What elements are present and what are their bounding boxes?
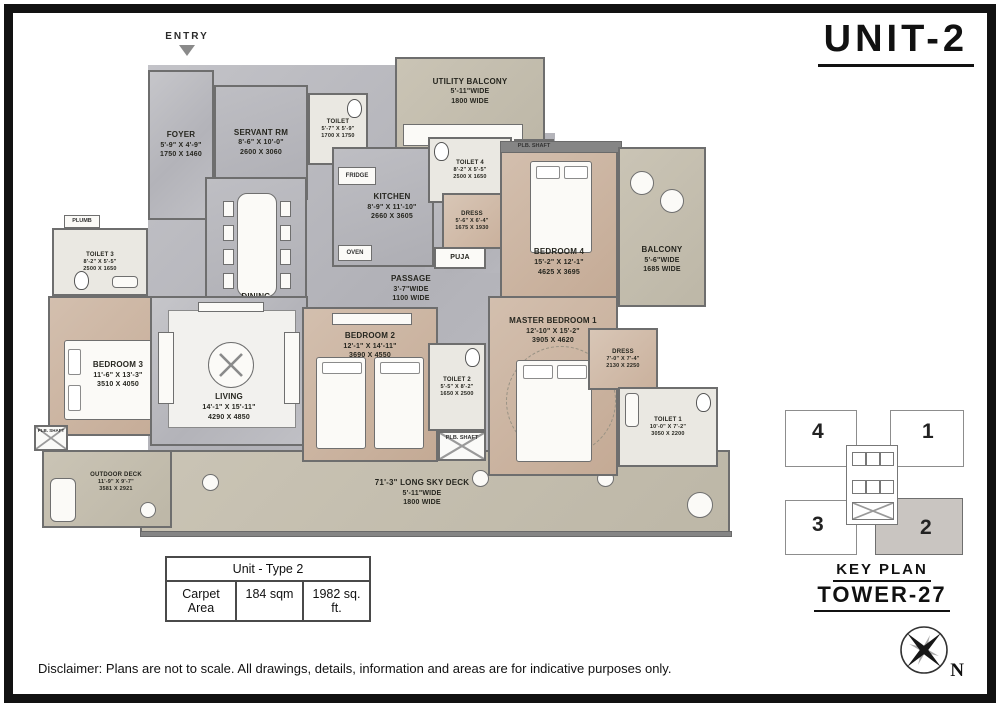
room-dims-mm: 3581 X 2921: [90, 486, 142, 493]
toilet-icon: [696, 393, 711, 412]
room-dims-mm: 3690 X 4550: [304, 351, 436, 360]
room-name: TOILET 1: [654, 417, 682, 423]
planter-icon: [202, 474, 219, 491]
room-name: LIVING: [215, 392, 243, 401]
dining-chair: [223, 273, 234, 289]
toilet-icon: [434, 142, 449, 161]
room-name: BEDROOM 3: [93, 360, 143, 369]
room-dims-ft: 15'-2" X 12'-1": [502, 258, 616, 267]
pillow: [557, 365, 587, 379]
keyplan-core: [846, 445, 898, 525]
dining-chair: [280, 201, 291, 217]
foyer-label: FOYER 5'-9" X 4'-9" 1750 X 1460: [160, 130, 202, 160]
room-name: 71'-3" LONG SKY DECK: [375, 478, 469, 487]
room-bedroom2: BEDROOM 2 12'-1" X 14'-11" 3690 X 4550: [302, 307, 438, 462]
room-dims-ft: 12'-10" X 15'-2": [490, 327, 616, 336]
toilet-icon: [465, 348, 480, 367]
bed-graphic: [530, 161, 592, 253]
puja-label: PUJA: [450, 253, 469, 262]
room-name: KITCHEN: [374, 192, 411, 201]
planter-icon: [472, 470, 489, 487]
room-puja: PUJA: [434, 247, 486, 269]
room-dims-mm: 3510 X 4050: [50, 380, 186, 389]
keyplan-core-cell: [866, 452, 880, 466]
lounge-chair: [50, 478, 76, 522]
entry-text: ENTRY: [165, 31, 209, 42]
compass-rose-icon: [896, 622, 952, 678]
room-dims-mm: 1800 WIDE: [322, 498, 522, 507]
carpet-area-sqft: 1982 sq. ft.: [302, 582, 369, 620]
room-name: MASTER BEDROOM 1: [509, 316, 597, 325]
room-name: BEDROOM 4: [534, 247, 584, 256]
living-label: LIVING 14'-1" X 15'-11" 4290 X 4850: [152, 392, 306, 422]
room-dims-ft: 8'-9" X 11'-10": [367, 203, 416, 212]
room-name: BEDROOM 2: [345, 331, 395, 340]
room-name: UTILITY BALCONY: [433, 77, 508, 86]
pillow: [523, 365, 553, 379]
bed-graphic: [516, 360, 592, 462]
dining-table: [237, 193, 277, 297]
room-dims-mm: 1685 WIDE: [620, 265, 704, 274]
keyplan-title: KEY PLAN: [782, 561, 982, 582]
dress4-label: DRESS 5'-6" X 6'-4" 1675 X 1930: [455, 210, 488, 233]
disclaimer-text: Disclaimer: Plans are not to scale. All …: [38, 661, 671, 676]
pillow: [564, 166, 588, 179]
carpet-area-label: Carpet Area: [167, 582, 235, 620]
room-name: SERVANT RM: [234, 128, 288, 137]
toilet3-label: TOILET 3 8'-2" X 5'-5" 2500 X 1650: [83, 251, 116, 274]
room-dims-ft: 3'-7"WIDE: [391, 285, 431, 294]
sky-deck-label: 71'-3" LONG SKY DECK 5'-11"WIDE 1800 WID…: [322, 478, 522, 508]
room-dims-mm: 1750 X 1460: [160, 150, 202, 159]
fridge-label: FRIDGE: [338, 167, 376, 185]
outdoor-deck-label: OUTDOOR DECK 11'-9" X 9'-7" 3581 X 2921: [90, 471, 142, 494]
room-dims-ft: 12'-1" X 14'-11": [304, 342, 436, 351]
room-dims-ft: 5'-7" X 5'-9": [321, 126, 354, 133]
area-table-header: Unit - Type 2: [167, 558, 369, 582]
toilet1-label: TOILET 1 10'-0" X 7'-2" 3050 X 2200: [650, 416, 686, 439]
room-dims-ft: 5'-6" X 6'-4": [455, 218, 488, 225]
room-name: DRESS: [461, 211, 483, 217]
carpet-area-sqm: 184 sqm: [235, 582, 302, 620]
tower-title-text: TOWER-27: [814, 582, 949, 612]
balcony-chair: [660, 189, 684, 213]
keyplan-core-cell: [866, 480, 880, 494]
room-passage: PASSAGE 3'-7"WIDE 1100 WIDE: [330, 269, 492, 309]
balcony-label: BALCONY 5'-6"WIDE 1685 WIDE: [620, 245, 704, 275]
room-balcony: BALCONY 5'-6"WIDE 1685 WIDE: [618, 147, 706, 307]
floor-plan: ENTRY 71'-3" LONG SKY DECK 5'-11"WIDE 18…: [30, 25, 765, 565]
room-toilet3: TOILET 3 8'-2" X 5'-5" 2500 X 1650: [52, 228, 148, 296]
pillow: [322, 362, 362, 374]
basin-icon: [625, 393, 639, 427]
room-dims-mm: 2660 X 3605: [367, 212, 416, 221]
oven-label: OVEN: [338, 245, 372, 261]
basin-icon: [112, 276, 138, 288]
room-name: TOILET: [327, 119, 349, 125]
room-dims-ft: 10'-0" X 7'-2": [650, 424, 686, 431]
room-toilet1: TOILET 1 10'-0" X 7'-2" 3050 X 2200: [618, 387, 718, 467]
keyplan-core-cell: [880, 452, 894, 466]
dining-chair: [223, 249, 234, 265]
room-outdoor-deck: OUTDOOR DECK 11'-9" X 9'-7" 3581 X 2921: [42, 450, 172, 528]
area-table-row: Carpet Area 184 sqm 1982 sq. ft.: [167, 582, 369, 620]
room-dims-mm: 1700 X 1750: [321, 133, 354, 140]
room-name: TOILET 2: [443, 377, 471, 383]
room-name: PASSAGE: [391, 274, 431, 283]
deck-table: [140, 502, 156, 518]
room-kitchen: KITCHEN 8'-9" X 11'-10" 2660 X 3605 FRID…: [332, 147, 434, 267]
room-dims-mm: 4625 X 3695: [502, 268, 616, 277]
plb-shaft-label: PLB. SHAFT: [516, 143, 552, 149]
room-dims-mm: 4290 X 4850: [152, 413, 306, 422]
room-toilet2: TOILET 2 5'-5" X 8'-2" 1650 X 2500: [428, 343, 486, 431]
shaft-cross-icon: [853, 503, 893, 519]
room-dims-mm: 3050 X 2200: [650, 431, 686, 438]
plb-shaft-left: PLB. SHAFT: [34, 425, 68, 451]
area-table: Unit - Type 2 Carpet Area 184 sqm 1982 s…: [165, 556, 371, 622]
dress1-label: DRESS 7'-0" X 7'-4" 2130 X 2250: [606, 348, 639, 371]
bedroom3-label: BEDROOM 3 11'-6" X 13'-3" 3510 X 4050: [50, 360, 186, 390]
toilet-icon: [347, 99, 362, 118]
room-dims-ft: 8'-2" X 5'-5": [83, 259, 116, 266]
console-graphic: [198, 302, 264, 312]
plb-shaft-label: PLB. SHAFT: [440, 435, 484, 441]
keyplan-unit-4: 4: [812, 420, 824, 444]
balcony-chair: [630, 171, 654, 195]
room-dims-ft: 5'-11"WIDE: [433, 87, 508, 96]
room-dims-mm: 2500 X 1650: [83, 266, 116, 273]
room-name: BALCONY: [642, 245, 683, 254]
room-dims-ft: 5'-9" X 4'-9": [160, 141, 202, 150]
entry-label: ENTRY: [152, 31, 222, 56]
table-cross-icon: [209, 343, 253, 387]
keyplan-unit-3: 3: [812, 513, 824, 537]
room-dims-ft: 5'-11"WIDE: [322, 489, 522, 498]
keyplan-core-cell: [880, 480, 894, 494]
room-dims-ft: 14'-1" X 15'-11": [152, 403, 306, 412]
kitchen-label: KITCHEN 8'-9" X 11'-10" 2660 X 3605: [367, 192, 416, 222]
entry-arrow-icon: [179, 45, 195, 56]
tower-title: TOWER-27: [782, 582, 982, 612]
keyplan-unit-1: 1: [922, 420, 934, 444]
room-name: OUTDOOR DECK: [90, 472, 142, 478]
dining-chair: [280, 225, 291, 241]
room-bedroom4: BEDROOM 4 15'-2" X 12'-1" 4625 X 3695: [500, 147, 618, 307]
keyplan-core-cell: [852, 502, 894, 520]
keyplan-core-cell: [852, 452, 866, 466]
room-dims-mm: 2600 X 3060: [234, 148, 288, 157]
servant-toilet-label: TOILET 5'-7" X 5'-9" 1700 X 1750: [321, 118, 354, 141]
passage-label: PASSAGE 3'-7"WIDE 1100 WIDE: [391, 274, 431, 304]
pillow: [380, 362, 420, 374]
toilet2-label: TOILET 2 5'-5" X 8'-2" 1650 X 2500: [440, 376, 473, 399]
dining-chair: [280, 249, 291, 265]
room-name: DRESS: [612, 349, 634, 355]
dining-chair: [280, 273, 291, 289]
room-dims-mm: 2130 X 2250: [606, 363, 639, 370]
keyplan-core-cell: [852, 480, 866, 494]
room-dims-ft: 5'-6"WIDE: [620, 256, 704, 265]
room-dims-ft: 5'-5" X 8'-2": [440, 384, 473, 391]
compass: N: [896, 622, 966, 682]
bedroom4-label: BEDROOM 4 15'-2" X 12'-1" 4625 X 3695: [502, 247, 616, 277]
room-name: TOILET 3: [86, 252, 114, 258]
room-dims-ft: 11'-6" X 13'-3": [50, 371, 186, 380]
room-dims-mm: 1800 WIDE: [433, 97, 508, 106]
pillow: [536, 166, 560, 179]
room-dims-ft: 8'-2" X 5'-5": [453, 167, 486, 174]
dining-chair: [223, 225, 234, 241]
keyplan-title-text: KEY PLAN: [833, 561, 931, 582]
planter-icon: [687, 492, 713, 518]
toilet-icon: [74, 271, 89, 290]
room-dims-mm: 1650 X 2500: [440, 391, 473, 398]
bed-graphic: [374, 357, 424, 449]
plumb-label: PLUMB: [64, 215, 100, 228]
keyplan-unit-2: 2: [920, 516, 932, 540]
room-dress4: DRESS 5'-6" X 6'-4" 1675 X 1930: [442, 193, 502, 249]
room-dims-ft: 8'-6" X 10'-0": [234, 138, 288, 147]
bed-graphic: [316, 357, 366, 449]
coffee-table: [208, 342, 254, 388]
master-label: MASTER BEDROOM 1 12'-10" X 15'-2" 3905 X…: [490, 316, 616, 346]
room-dims-mm: 3905 X 4620: [490, 336, 616, 345]
dining-chair: [223, 201, 234, 217]
wardrobe-graphic: [332, 313, 412, 325]
utility-balcony-label: UTILITY BALCONY 5'-11"WIDE 1800 WIDE: [433, 77, 508, 107]
unit-title: UNIT-2: [818, 18, 974, 67]
deck-edge-wall: [140, 531, 732, 537]
bedroom2-label: BEDROOM 2 12'-1" X 14'-11" 3690 X 4550: [304, 331, 436, 361]
north-label: N: [950, 660, 964, 682]
room-dims-ft: 11'-9" X 9'-7": [90, 479, 142, 486]
room-dims-mm: 1675 X 1930: [455, 225, 488, 232]
room-dims-mm: 2500 X 1650: [453, 174, 486, 181]
key-plan: 4 1 3 2 KEY PLAN TOWER-27: [782, 398, 982, 610]
toilet4-label: TOILET 4 8'-2" X 5'-5" 2500 X 1650: [453, 159, 486, 182]
plb-shaft-label: PLB. SHAFT: [36, 429, 66, 434]
plb-shaft-mid: PLB. SHAFT: [438, 431, 486, 461]
room-dims-ft: 7'-0" X 7'-4": [606, 356, 639, 363]
room-dims-mm: 1100 WIDE: [391, 294, 431, 303]
servant-label: SERVANT RM 8'-6" X 10'-0" 2600 X 3060: [234, 128, 288, 158]
room-name: FOYER: [167, 130, 196, 139]
room-name: TOILET 4: [456, 160, 484, 166]
